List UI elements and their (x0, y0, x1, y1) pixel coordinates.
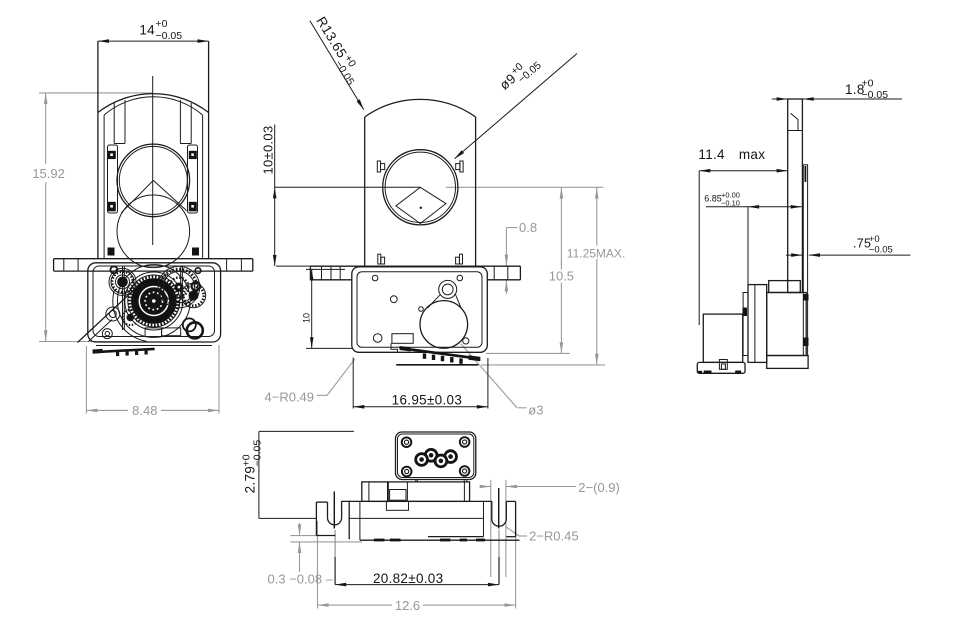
svg-text:−0.10: −0.10 (721, 198, 740, 207)
svg-text:+0: +0 (862, 78, 874, 90)
svg-text:+0: +0 (156, 18, 168, 30)
svg-text:16.95±0.03: 16.95±0.03 (392, 393, 462, 408)
svg-text:4−R0.49: 4−R0.49 (265, 390, 315, 405)
svg-text:2−(0.9): 2−(0.9) (578, 480, 620, 495)
svg-text:10±0.03: 10±0.03 (260, 126, 275, 175)
svg-text:ø3: ø3 (528, 403, 543, 418)
svg-text:−0.05: −0.05 (869, 244, 893, 255)
svg-text:0.3 −0.08 –: 0.3 −0.08 – (268, 572, 334, 587)
svg-text:11.4: 11.4 (698, 147, 725, 162)
svg-text:11.25MAX.: 11.25MAX. (567, 247, 625, 261)
svg-text:8.48: 8.48 (132, 403, 157, 418)
svg-text:−0.05: −0.05 (252, 440, 264, 467)
svg-text:2−R0.45: 2−R0.45 (529, 529, 579, 544)
svg-text:10.5: 10.5 (549, 268, 574, 283)
svg-text:12.6: 12.6 (395, 598, 420, 613)
svg-text:−0.05: −0.05 (156, 30, 183, 42)
svg-text:max: max (739, 147, 765, 162)
svg-text:10: 10 (302, 313, 312, 323)
svg-text:2.79: 2.79 (243, 466, 258, 493)
svg-text:15.92: 15.92 (32, 166, 65, 181)
svg-text:20.82±0.03: 20.82±0.03 (373, 571, 443, 586)
svg-text:+0: +0 (869, 234, 880, 245)
svg-text:14: 14 (139, 22, 155, 37)
svg-text:−0.05: −0.05 (862, 89, 889, 101)
svg-text:0.8: 0.8 (519, 220, 537, 235)
svg-text:6.85: 6.85 (704, 194, 722, 204)
